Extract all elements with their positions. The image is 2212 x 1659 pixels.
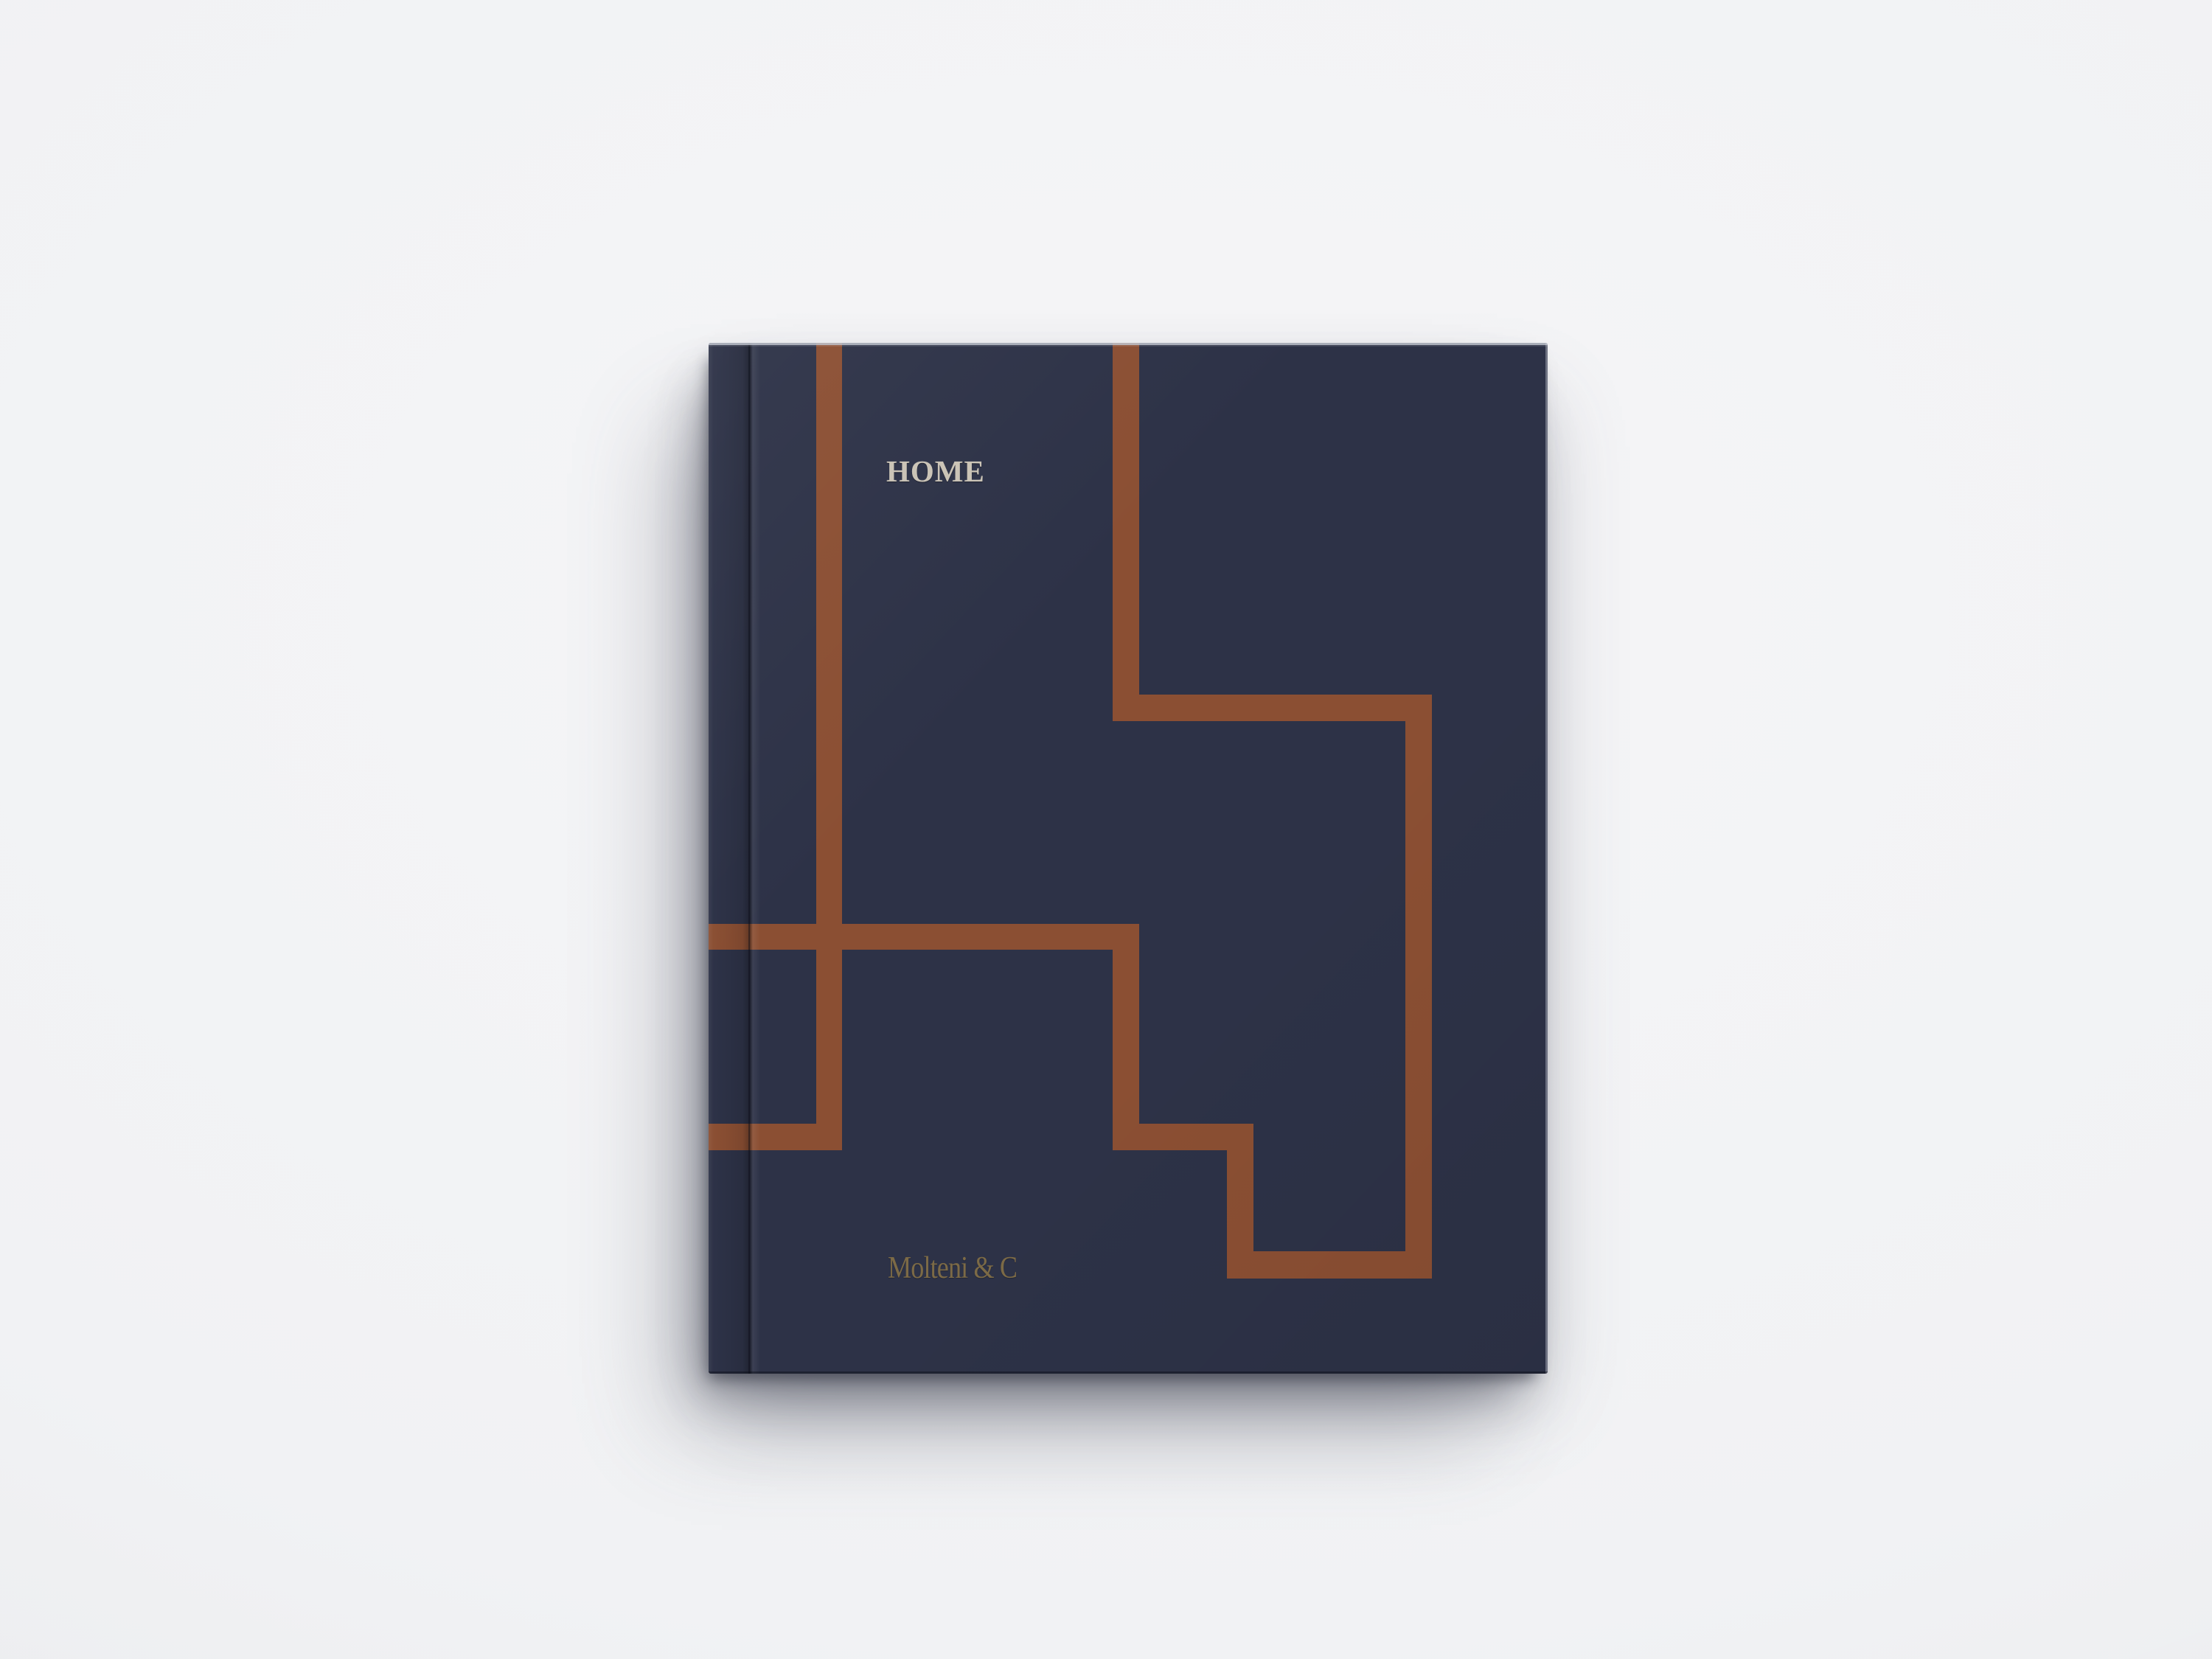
cover-pattern-segment-right-vertical [1405, 695, 1432, 1279]
cover-pattern-segment-middle-horizontal [709, 924, 1139, 950]
cover-title: HOME [886, 456, 985, 487]
cover-pattern-segment-upper-horizontal [1113, 695, 1432, 721]
cover-pattern-segment-center-vertical-lower [1113, 924, 1139, 1150]
brand-logo: Molteni & C [888, 1253, 1017, 1284]
cover-pattern [709, 343, 1548, 1374]
cover-pattern-segment-u-bottom-horizontal [1227, 1251, 1432, 1279]
cover-pattern-segment-left-vertical [816, 343, 842, 1150]
book-cover: HOME Molteni & C [709, 343, 1548, 1374]
cover-pattern-segment-left-foot-horizontal [709, 1124, 842, 1150]
cover-pattern-segment-center-vertical-upper [1113, 343, 1139, 721]
scene-background: HOME Molteni & C [0, 0, 2212, 1659]
